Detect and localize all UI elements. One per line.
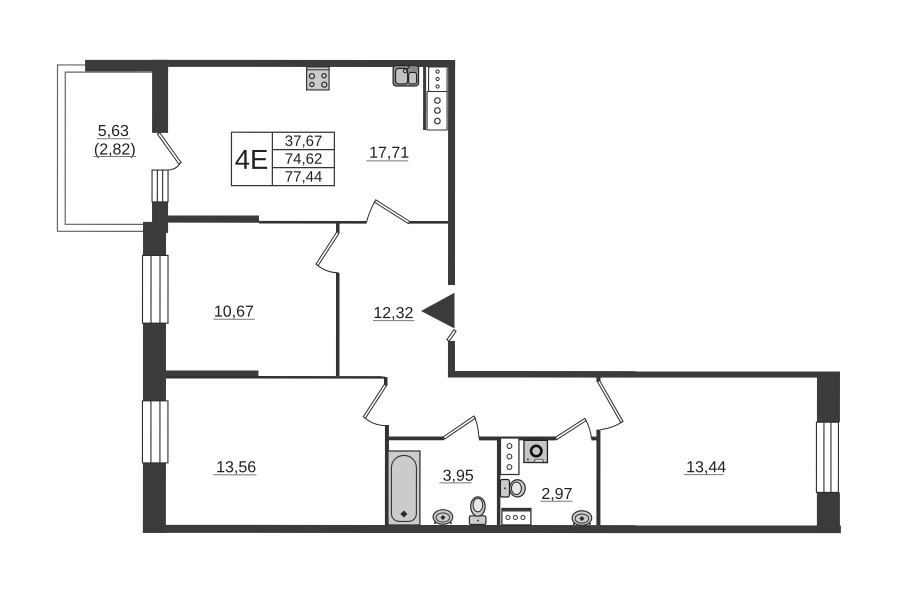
svg-text:17,71: 17,71: [369, 145, 409, 162]
svg-text:77,44: 77,44: [285, 169, 323, 186]
svg-text:37,67: 37,67: [285, 133, 323, 150]
svg-text:74,62: 74,62: [285, 151, 323, 168]
svg-text:13,56: 13,56: [216, 459, 256, 476]
svg-text:10,67: 10,67: [214, 304, 254, 321]
svg-text:4E: 4E: [235, 144, 269, 175]
svg-text:2,97: 2,97: [541, 486, 572, 503]
svg-text:13,44: 13,44: [686, 459, 726, 476]
svg-text:12,32: 12,32: [373, 305, 413, 322]
svg-text:5,63: 5,63: [98, 123, 129, 140]
svg-text:3,95: 3,95: [443, 468, 474, 485]
